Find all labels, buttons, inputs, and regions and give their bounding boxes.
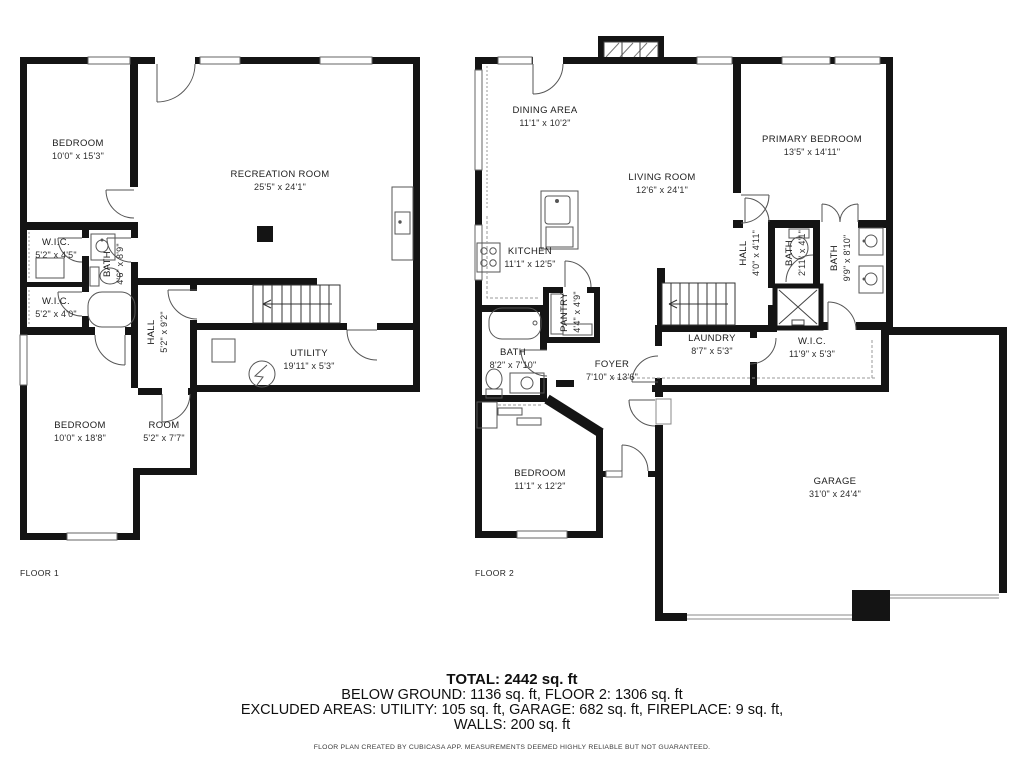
room-label-w-i-c-: W.I.C.11'9" x 5'3" xyxy=(789,336,835,360)
bedroom-closet-icon xyxy=(477,402,541,428)
garage-door-icon xyxy=(890,593,999,600)
room-label-bedroom: BEDROOM10'0" x 15'3" xyxy=(52,138,104,162)
area-summary: TOTAL: 2442 sq. ft BELOW GROUND: 1136 sq… xyxy=(0,672,1024,734)
sink-icon xyxy=(510,373,544,393)
bathtub-icon xyxy=(88,292,135,327)
room-label-hall: HALL4'0" x 4'11" xyxy=(738,230,762,276)
stairs-icon-floor1 xyxy=(253,285,340,323)
floor1-tag: FLOOR 1 xyxy=(20,568,59,578)
room-label-bedroom: BEDROOM10'0" x 18'8" xyxy=(54,420,106,444)
lightning-icon xyxy=(255,365,267,385)
stairs-icon-floor2 xyxy=(662,283,735,325)
utility-fixtures xyxy=(212,339,275,387)
room-label-bath: BATH4'6" x 8'9" xyxy=(102,243,126,285)
kitchen-island-icon xyxy=(541,191,578,249)
room-label-hall: HALL5'2" x 9'2" xyxy=(146,311,170,353)
room-label-laundry: LAUNDRY8'7" x 5'3" xyxy=(688,333,736,357)
floor1-walls xyxy=(20,57,420,540)
floor1-plan xyxy=(20,57,420,540)
toilet-icon xyxy=(486,369,502,389)
room-label-garage: GARAGE31'0" x 24'4" xyxy=(809,476,861,500)
column xyxy=(257,226,273,242)
total-area: TOTAL: 2442 sq. ft xyxy=(0,672,1024,688)
room-label-foyer: FOYER7'10" x 13'6" xyxy=(586,359,638,383)
room-label-bath: BATH8'2" x 7'10" xyxy=(490,347,537,371)
room-label-recreation-room: RECREATION ROOM25'5" x 24'1" xyxy=(230,169,329,193)
floor2-tag: FLOOR 2 xyxy=(475,568,514,578)
room-label-bedroom: BEDROOM11'1" x 12'2" xyxy=(514,468,566,492)
room-label-w-i-c-: W.I.C.5'2" x 4'0" xyxy=(35,296,77,320)
diagonal-wall xyxy=(547,399,601,433)
water-heater-icon xyxy=(249,361,275,387)
built-in-unit-icon xyxy=(392,187,413,260)
floor-areas: BELOW GROUND: 1136 sq. ft, FLOOR 2: 1306… xyxy=(0,688,1024,703)
room-label-living-room: LIVING ROOM12'6" x 24'1" xyxy=(628,172,695,196)
room-label-bath: BATH9'9" x 8'10" xyxy=(829,235,853,282)
shower-icon xyxy=(775,286,821,328)
room-label-bath: BATH2'11" x 4'1" xyxy=(784,230,808,276)
garage-doors xyxy=(687,593,999,621)
disclaimer-text: FLOOR PLAN CREATED BY CUBICASA APP. MEAS… xyxy=(0,744,1024,751)
room-label-dining-area: DINING AREA11'1" x 10'2" xyxy=(512,105,577,129)
room-label-kitchen: KITCHEN11'1" x 12'5" xyxy=(504,246,555,270)
electrical-panel-icon xyxy=(212,339,235,362)
toilet-tank-icon xyxy=(90,267,99,286)
room-label-utility: UTILITY19'11" x 5'3" xyxy=(283,348,334,372)
floor1-door-gaps xyxy=(155,57,195,64)
floorplan-page: BEDROOM10'0" x 15'3"RECREATION ROOM25'5"… xyxy=(0,0,1024,768)
room-label-pantry: PANTRY4'4" x 4'9" xyxy=(559,291,583,333)
room-label-w-i-c-: W.I.C.5'2" x 4'5" xyxy=(35,237,77,261)
wic-closet-dashes xyxy=(612,340,876,378)
walls-area: WALLS: 200 sq. ft xyxy=(0,718,1024,733)
floor2-door-gaps xyxy=(533,57,563,64)
garage-door-icon xyxy=(687,613,852,621)
room-label-room: ROOM5'2" x 7'7" xyxy=(143,420,185,444)
room-label-primary-bedroom: PRIMARY BEDROOM13'5" x 14'11" xyxy=(762,134,862,158)
excluded-areas: EXCLUDED AREAS: UTILITY: 105 sq. ft, GAR… xyxy=(0,703,1024,718)
